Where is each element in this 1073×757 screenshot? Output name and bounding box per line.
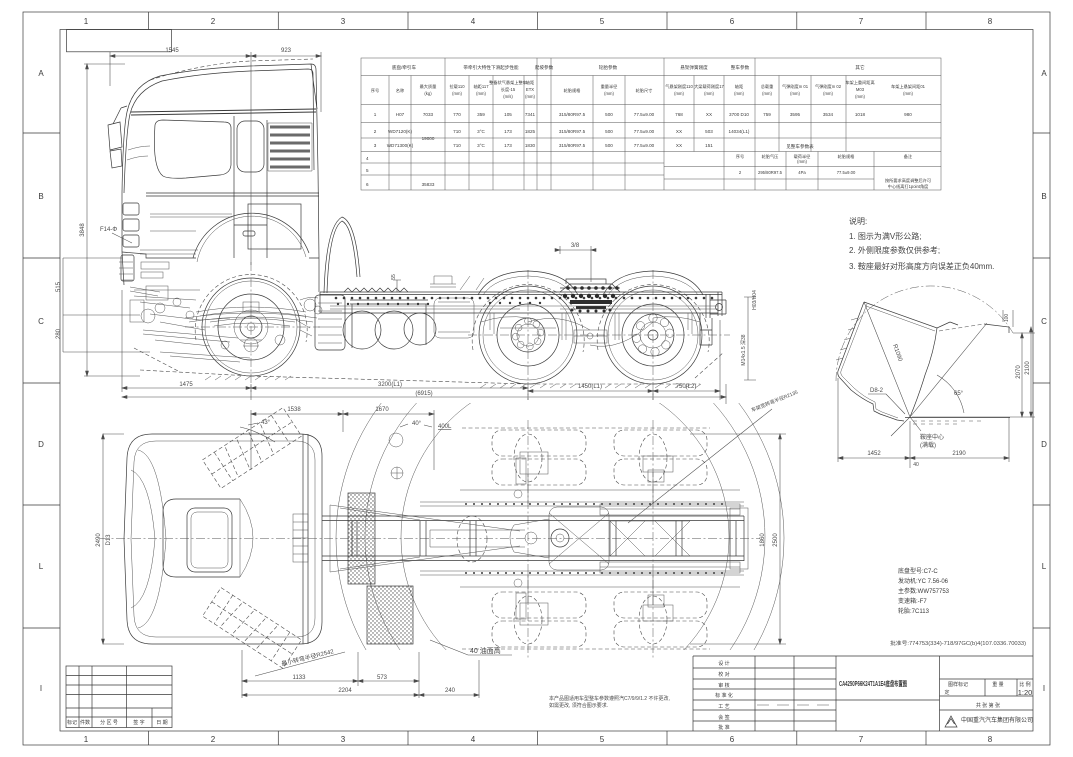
svg-text:I: I (1043, 684, 1045, 693)
svg-text:980: 980 (904, 112, 912, 117)
svg-text:105: 105 (504, 112, 512, 117)
svg-text:(mm): (mm) (762, 91, 772, 96)
svg-text:M03: M03 (856, 87, 865, 92)
svg-text:C: C (1041, 317, 1047, 326)
svg-text:D: D (38, 440, 44, 449)
svg-text:7: 7 (859, 735, 864, 744)
svg-text:7: 7 (859, 17, 864, 26)
svg-text:2: 2 (211, 735, 216, 744)
svg-text:车架上悬架间距01: 车架上悬架间距01 (891, 83, 926, 90)
svg-text:2. 外侧限度参数仅供参考;: 2. 外侧限度参数仅供参考; (849, 245, 940, 255)
svg-text:7033: 7033 (423, 112, 434, 117)
svg-text:1860: 1860 (760, 533, 766, 547)
svg-text:3: 3 (374, 143, 377, 148)
svg-text:173: 173 (504, 143, 512, 148)
svg-text:35833: 35833 (422, 182, 435, 187)
svg-text:(mm): (mm) (604, 91, 614, 96)
svg-text:759: 759 (763, 112, 771, 117)
svg-text:标记: 标记 (67, 719, 77, 726)
svg-text:变速箱:-F7: 变速箱:-F7 (898, 597, 927, 605)
svg-text:H07: H07 (396, 112, 405, 117)
svg-text:1450(L1): 1450(L1) (578, 384, 602, 390)
svg-text:500: 500 (605, 129, 613, 134)
svg-text:4Pa: 4Pa (798, 170, 806, 175)
svg-text:5: 5 (366, 168, 369, 173)
svg-text:1133: 1133 (293, 675, 307, 681)
svg-text:D8-2: D8-2 (870, 388, 884, 394)
svg-text:备注: 备注 (904, 153, 913, 160)
svg-text:鞍座中心: 鞍座中心 (920, 433, 944, 441)
svg-text:爬坡参数: 爬坡参数 (535, 64, 554, 71)
svg-text:XX: XX (676, 143, 682, 148)
svg-text:轴距117: 轴距117 (473, 83, 489, 90)
svg-text:3°C: 3°C (477, 129, 485, 134)
svg-text:WD7120(K): WD7120(K) (388, 129, 412, 134)
svg-text:1018: 1018 (855, 112, 866, 117)
svg-text:中心线离打1point角度: 中心线离打1point角度 (888, 183, 930, 190)
svg-text:图样标记: 图样标记 (948, 681, 968, 688)
svg-text:会 签: 会 签 (718, 714, 729, 721)
svg-text:(kg): (kg) (424, 91, 432, 96)
svg-text:2: 2 (374, 129, 377, 134)
svg-text:(mm): (mm) (525, 94, 535, 99)
svg-text:定: 定 (944, 689, 949, 696)
svg-text:173: 173 (504, 129, 512, 134)
svg-text:审 核: 审 核 (718, 682, 729, 689)
svg-text:轴距: 轴距 (526, 79, 534, 86)
svg-text:77.5±9.00: 77.5±9.00 (634, 112, 655, 117)
svg-text:共 张 第 张: 共 张 第 张 (976, 702, 1000, 709)
svg-text:6: 6 (730, 735, 735, 744)
svg-text:8: 8 (988, 735, 993, 744)
svg-text:3/8: 3/8 (571, 243, 580, 249)
svg-text:轮胎:7C113: 轮胎:7C113 (898, 607, 930, 615)
svg-text:770: 770 (453, 112, 461, 117)
svg-text:2500: 2500 (773, 533, 779, 547)
svg-text:8: 8 (988, 17, 993, 26)
svg-text:整备状气悬架上整车: 整备状气悬架上整车 (489, 79, 527, 86)
svg-text:气弹刚度m 02: 气弹刚度m 02 (815, 83, 842, 90)
svg-text:轮胎尺寸: 轮胎尺寸 (636, 87, 653, 94)
svg-text:(满载): (满载) (920, 441, 936, 449)
svg-text:I: I (40, 684, 42, 693)
svg-text:19000: 19000 (422, 136, 435, 141)
svg-text:2204: 2204 (338, 688, 352, 694)
svg-text:1: 1 (374, 112, 377, 117)
svg-text:(mm): (mm) (823, 91, 833, 96)
svg-text:77.5±9.00: 77.5±9.00 (837, 170, 856, 175)
svg-text:500: 500 (605, 143, 613, 148)
svg-text:带牵引大特性下滑起步性能: 带牵引大特性下滑起步性能 (463, 64, 519, 71)
svg-text:1452: 1452 (867, 451, 881, 457)
svg-text:5: 5 (600, 735, 605, 744)
svg-text:重 量: 重 量 (992, 681, 1003, 688)
svg-text:3200(L1): 3200(L1) (378, 382, 402, 388)
svg-text:(6915): (6915) (415, 391, 432, 397)
svg-text:校 对: 校 对 (718, 671, 729, 678)
svg-text:CA4250P66K24T1A1E4底盘布置图: CA4250P66K24T1A1E4底盘布置图 (839, 679, 907, 688)
svg-text:40°: 40° (412, 421, 422, 427)
svg-text:(mm): (mm) (734, 91, 744, 96)
svg-text:A: A (1041, 69, 1047, 78)
svg-text:发动机:YC 7.56-06: 发动机:YC 7.56-06 (898, 577, 949, 585)
svg-text:拉载110: 拉载110 (449, 83, 465, 90)
svg-text:F14-Φ: F14-Φ (100, 227, 117, 233)
svg-text:L: L (39, 562, 44, 571)
svg-text:(mm): (mm) (855, 94, 865, 99)
svg-text:B: B (1041, 192, 1046, 201)
svg-text:315/80R97.5: 315/80R97.5 (559, 143, 586, 148)
svg-text:标 准 化: 标 准 化 (715, 692, 733, 699)
svg-text:轮胎参数: 轮胎参数 (599, 64, 618, 71)
svg-text:315/80R97.5: 315/80R97.5 (559, 129, 586, 134)
svg-text:中国重汽汽车集团有限公司: 中国重汽汽车集团有限公司 (961, 716, 1033, 724)
svg-text:悬架弹簧刚度: 悬架弹簧刚度 (680, 64, 708, 71)
svg-text:批准号:774753(334)-718/97GC(b)4(1: 批准号:774753(334)-718/97GC(b)4(107.0336.70… (890, 640, 1026, 647)
svg-text:C: C (38, 317, 44, 326)
svg-text:1545: 1545 (165, 48, 179, 54)
svg-text:序号: 序号 (736, 153, 744, 160)
svg-text:710: 710 (453, 129, 461, 134)
svg-text:D: D (1041, 440, 1047, 449)
svg-text:设 计: 设 计 (718, 660, 729, 667)
svg-text:整车参数: 整车参数 (731, 64, 750, 71)
svg-text:轮胎气压: 轮胎气压 (762, 153, 779, 160)
svg-text:2: 2 (211, 17, 216, 26)
svg-text:主参数:WW757753: 主参数:WW757753 (898, 587, 950, 595)
svg-text:1: 1 (84, 17, 89, 26)
svg-text:40: 40 (913, 462, 919, 468)
svg-text:1670: 1670 (375, 407, 389, 413)
svg-text:4: 4 (471, 17, 476, 26)
svg-text:3848: 3848 (80, 223, 86, 237)
svg-text:XX: XX (706, 112, 712, 117)
svg-text:1475: 1475 (179, 382, 193, 388)
svg-text:工 艺: 工 艺 (718, 704, 729, 710)
svg-text:XX: XX (676, 129, 682, 134)
svg-text:768: 768 (675, 112, 683, 117)
svg-text:4: 4 (366, 156, 369, 161)
svg-text:(mm): (mm) (452, 91, 462, 96)
svg-text:最大质量: 最大质量 (420, 83, 437, 90)
svg-text:气弹刚度m 01: 气弹刚度m 01 (782, 83, 809, 90)
svg-text:重量半径: 重量半径 (601, 83, 618, 90)
svg-text:77.5±9.00: 77.5±9.00 (634, 129, 655, 134)
svg-text:L: L (1042, 562, 1047, 571)
svg-text:3°C: 3°C (477, 143, 485, 148)
svg-text:其它: 其它 (855, 64, 865, 71)
svg-text:H03/H04: H03/H04 (752, 290, 758, 310)
svg-text:1: 1 (84, 735, 89, 744)
svg-text:3534: 3534 (823, 112, 834, 117)
svg-text:40 油面高: 40 油面高 (470, 646, 501, 655)
svg-text:日 期: 日 期 (156, 720, 167, 726)
svg-text:轴距: 轴距 (735, 83, 743, 90)
svg-text:4: 4 (471, 735, 476, 744)
svg-text:批 准: 批 准 (718, 724, 729, 731)
svg-text:比 例: 比 例 (1019, 681, 1030, 688)
svg-text:750(L2): 750(L2) (676, 384, 697, 390)
svg-text:说明:: 说明: (849, 216, 867, 226)
svg-text:车架上重间距离: 车架上重间距离 (845, 79, 874, 86)
svg-text:2100: 2100 (1025, 361, 1031, 375)
svg-text:本产品图适用车型整车参数遵照汽C7/9/9/1.2 不许更改: 本产品图适用车型整车参数遵照汽C7/9/9/1.2 不许更改, (549, 695, 670, 702)
svg-text:总载重: 总载重 (761, 83, 774, 90)
svg-text:100: 100 (1004, 314, 1010, 323)
svg-text:3: 3 (341, 17, 346, 26)
svg-text:3595: 3595 (790, 112, 801, 117)
svg-text:(mm): (mm) (704, 91, 714, 96)
svg-text:(mm): (mm) (674, 91, 684, 96)
svg-text:B: B (38, 192, 43, 201)
svg-text:见整车参数表: 见整车参数表 (786, 143, 814, 150)
svg-text:400L: 400L (438, 424, 452, 430)
svg-text:3700 D10: 3700 D10 (729, 112, 749, 117)
svg-text:大梁载荷刚度17: 大梁载荷刚度17 (694, 83, 724, 90)
svg-text:(mm): (mm) (476, 91, 486, 96)
svg-text:2070: 2070 (1016, 365, 1022, 379)
svg-text:轮胎规格: 轮胎规格 (838, 153, 856, 160)
svg-text:2490: 2490 (96, 533, 102, 547)
svg-text:WD71300(K): WD71300(K) (387, 143, 414, 148)
svg-text:43°: 43° (261, 420, 271, 426)
svg-text:359: 359 (477, 112, 485, 117)
svg-text:5: 5 (600, 17, 605, 26)
svg-text:分 区 号: 分 区 号 (100, 719, 118, 726)
svg-text:14034(L1): 14034(L1) (729, 129, 750, 134)
svg-text:如需更改, 须符合图示要求.: 如需更改, 须符合图示要求. (549, 702, 608, 709)
svg-text:1825: 1825 (525, 129, 536, 134)
svg-text:515: 515 (56, 281, 62, 292)
svg-text:序号: 序号 (371, 87, 379, 94)
svg-text:77.5±9.00: 77.5±9.00 (634, 143, 655, 148)
svg-text:底盘/牵引车: 底盘/牵引车 (392, 64, 417, 71)
svg-text:(mm): (mm) (797, 159, 807, 164)
svg-text:D13: D13 (106, 534, 112, 546)
svg-text:ETX: ETX (526, 87, 534, 92)
svg-text:1538: 1538 (287, 407, 301, 413)
svg-text:6: 6 (366, 182, 369, 187)
svg-text:(m/s): (m/s) (503, 94, 513, 99)
svg-text:3. 鞍座最好对形高度方向误差正负40mm.: 3. 鞍座最好对形高度方向误差正负40mm. (849, 261, 994, 271)
svg-text:151: 151 (705, 143, 713, 148)
svg-text:1. 图示为满V形公路;: 1. 图示为满V形公路; (849, 231, 921, 241)
svg-text:55: 55 (391, 274, 397, 280)
svg-text:7341: 7341 (525, 112, 536, 117)
svg-text:签 字: 签 字 (133, 719, 144, 726)
svg-text:(mm): (mm) (903, 91, 913, 96)
svg-text:280: 280 (56, 328, 62, 339)
svg-text:923: 923 (281, 48, 292, 54)
svg-text:1830: 1830 (525, 143, 536, 148)
svg-text:500: 500 (605, 112, 613, 117)
svg-text:气悬架刚度110: 气悬架刚度110 (665, 83, 693, 90)
svg-text:长度-15: 长度-15 (501, 86, 516, 93)
svg-text:按所要求高度调整后许可: 按所要求高度调整后许可 (885, 177, 931, 184)
svg-text:1:20: 1:20 (1018, 688, 1033, 697)
svg-text:名称: 名称 (396, 87, 404, 94)
svg-text:710: 710 (453, 143, 461, 148)
svg-text:(mm): (mm) (790, 91, 800, 96)
svg-text:6: 6 (730, 17, 735, 26)
svg-text:65°: 65° (954, 391, 964, 397)
svg-text:底盘型号:C7-C: 底盘型号:C7-C (898, 567, 938, 575)
svg-text:295/80R97.5: 295/80R97.5 (758, 170, 783, 175)
svg-text:315/80R97.5: 315/80R97.5 (559, 112, 586, 117)
svg-text:A: A (38, 69, 44, 78)
svg-text:件数: 件数 (80, 719, 90, 726)
svg-text:503: 503 (705, 129, 713, 134)
svg-text:573: 573 (377, 675, 388, 681)
svg-text:轮胎规格: 轮胎规格 (564, 87, 582, 94)
svg-text:M14x1.5 深38: M14x1.5 深38 (740, 334, 747, 365)
svg-text:2190: 2190 (952, 451, 966, 457)
svg-text:3: 3 (341, 735, 346, 744)
svg-text:240: 240 (445, 688, 456, 694)
